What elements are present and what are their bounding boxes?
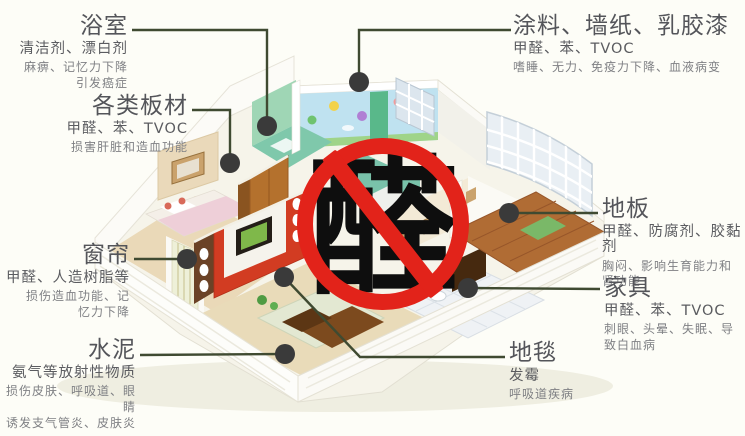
callout-title: 各类板材: [0, 94, 188, 118]
callout-cement: 水泥 氨气等放射性物质 损伤皮肤、呼吸道、眼睛 诱发支气管炎、皮肤炎: [0, 338, 136, 431]
callout-effects: 嗜睡、无力、免疫力下降、血液病变: [513, 60, 745, 76]
marker-dot-floor: [499, 203, 519, 223]
callout-pollutants: 甲醛、苯、TVOC: [513, 42, 745, 57]
callout-pollutants: 氨气等放射性物质: [0, 366, 136, 381]
callout-boards: 各类板材 甲醛、苯、TVOC 损害肝脏和造血功能: [0, 94, 188, 156]
callout-title: 家具: [604, 276, 745, 300]
callout-line-cement: [140, 354, 285, 355]
callout-title: 浴室: [0, 14, 128, 38]
no-formaldehyde-stamp: 醛: [305, 143, 461, 317]
marker-dot-bathroom: [257, 116, 277, 136]
callout-effects: 麻痹、记忆力下降 引发癌症: [0, 60, 128, 91]
callout-pollutants: 甲醛、防腐剂、胶黏剂: [602, 225, 745, 255]
marker-dot-furniture: [458, 278, 478, 298]
callout-pollutants: 发霉: [509, 369, 659, 384]
marker-dot-boards: [220, 153, 240, 173]
callout-curtain: 窗帘 甲醛、人造树脂等 损伤造血功能、记 忆力下降: [0, 243, 130, 321]
callout-paint: 涂料、墙纸、乳胶漆 甲醛、苯、TVOC 嗜睡、无力、免疫力下降、血液病变: [513, 14, 745, 76]
mural-wardrobe-strip: [370, 91, 388, 144]
callout-title: 地板: [602, 197, 745, 221]
formaldehyde-infographic: 醛 浴室 清洁剂、漂白剂 麻痹、记忆力下降: [0, 0, 745, 436]
callout-pollutants: 清洁剂、漂白剂: [0, 42, 128, 57]
callout-effects: 呼吸道疾病: [509, 387, 659, 403]
callout-title: 涂料、墙纸、乳胶漆: [513, 14, 745, 38]
callout-title: 水泥: [0, 338, 136, 362]
callout-pollutants: 甲醛、苯、TVOC: [0, 122, 188, 137]
callout-line-paint: [359, 30, 511, 82]
marker-dot-cement: [275, 344, 295, 364]
callout-pollutants: 甲醛、苯、TVOC: [604, 304, 745, 319]
callout-title: 地毯: [509, 341, 659, 365]
marker-dot-paint: [349, 72, 369, 92]
callout-carpet: 地毯 发霉 呼吸道疾病: [509, 341, 659, 403]
callout-bathroom: 浴室 清洁剂、漂白剂 麻痹、记忆力下降 引发癌症: [0, 14, 128, 92]
callout-effects: 损伤皮肤、呼吸道、眼睛 诱发支气管炎、皮肤炎: [0, 384, 136, 431]
callout-title: 窗帘: [0, 243, 130, 267]
callout-effects: 损伤造血功能、记 忆力下降: [0, 289, 130, 320]
callout-effects: 损害肝脏和造血功能: [0, 140, 188, 156]
marker-dot-curtain: [177, 249, 197, 269]
marker-dot-carpet: [274, 267, 294, 287]
callout-pollutants: 甲醛、人造树脂等: [0, 271, 130, 286]
callout-line-furniture: [468, 288, 600, 289]
